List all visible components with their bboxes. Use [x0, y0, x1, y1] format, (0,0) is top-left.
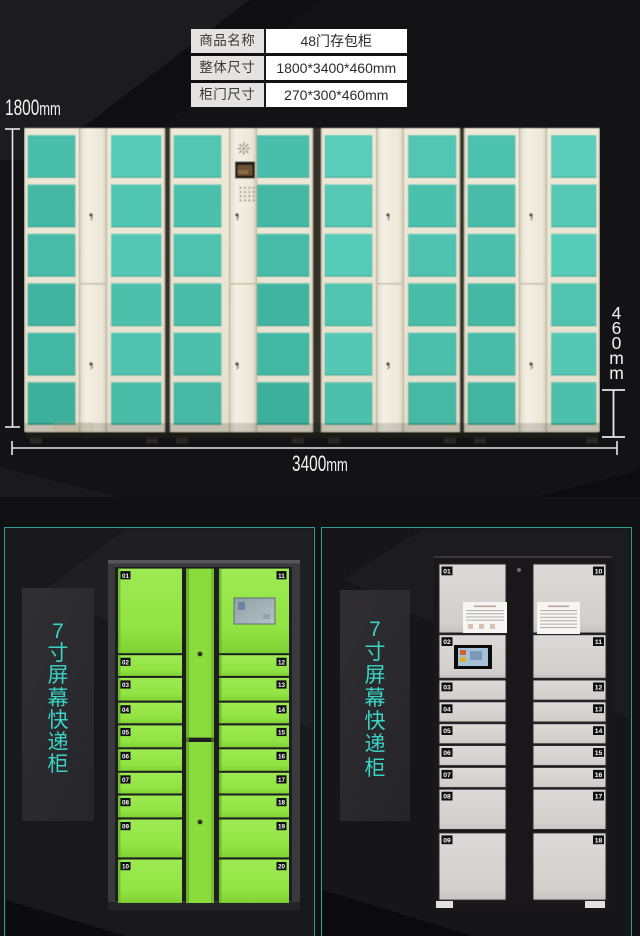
svg-text:06: 06: [122, 754, 130, 761]
svg-text:16: 16: [595, 772, 603, 779]
svg-text:08: 08: [122, 800, 130, 807]
svg-text:18: 18: [278, 800, 286, 807]
svg-text:14: 14: [278, 707, 286, 714]
svg-text:10: 10: [122, 864, 130, 871]
svg-text:12: 12: [595, 685, 603, 692]
svg-text:11: 11: [595, 639, 602, 646]
svg-text:15: 15: [278, 730, 286, 737]
svg-text:20: 20: [278, 864, 286, 871]
svg-text:01: 01: [443, 569, 451, 576]
svg-text:05: 05: [443, 728, 451, 735]
svg-text:14: 14: [595, 728, 603, 735]
svg-text:15: 15: [595, 750, 603, 757]
svg-text:06: 06: [443, 750, 451, 757]
svg-text:18: 18: [595, 837, 603, 844]
svg-text:07: 07: [122, 777, 130, 784]
svg-text:05: 05: [122, 730, 130, 737]
svg-text:12: 12: [278, 659, 286, 666]
svg-text:17: 17: [595, 794, 603, 801]
svg-text:13: 13: [278, 682, 286, 689]
svg-text:17: 17: [278, 777, 286, 784]
svg-text:16: 16: [278, 754, 286, 761]
svg-text:07: 07: [443, 772, 451, 779]
svg-text:19: 19: [278, 824, 286, 831]
svg-text:04: 04: [122, 707, 130, 714]
svg-text:03: 03: [122, 682, 130, 689]
svg-text:11: 11: [278, 573, 285, 580]
svg-text:10: 10: [595, 569, 603, 576]
svg-text:02: 02: [122, 659, 130, 666]
svg-text:02: 02: [443, 639, 451, 646]
svg-text:03: 03: [443, 685, 451, 692]
svg-text:09: 09: [443, 837, 451, 844]
svg-text:08: 08: [443, 794, 451, 801]
svg-text:09: 09: [122, 824, 130, 831]
svg-text:04: 04: [443, 706, 451, 713]
svg-text:01: 01: [122, 573, 130, 580]
svg-text:13: 13: [595, 706, 603, 713]
